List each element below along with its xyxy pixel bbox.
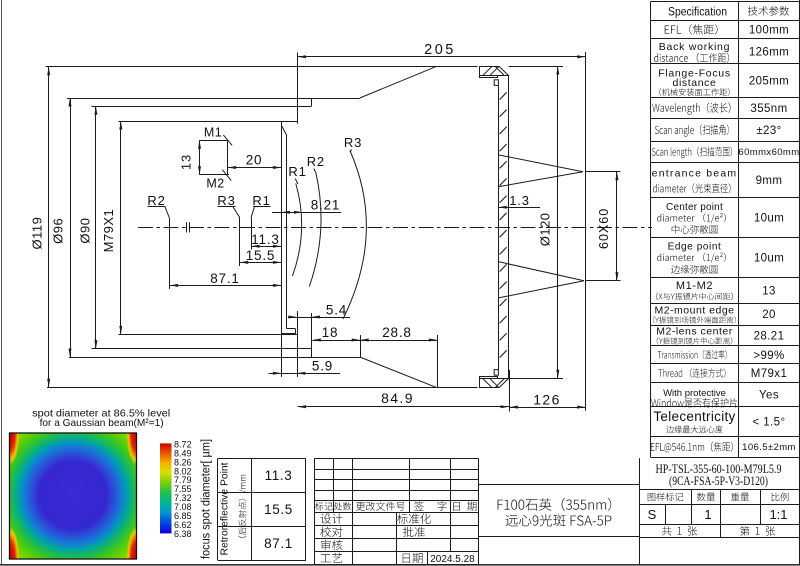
svg-text:R3: R3: [344, 135, 362, 150]
svg-text:13: 13: [179, 154, 194, 170]
svg-text:6.38: 6.38: [174, 529, 192, 539]
svg-text:13: 13: [762, 286, 776, 298]
svg-text:Ø119: Ø119: [29, 217, 44, 250]
svg-text:87.1: 87.1: [264, 536, 293, 551]
svg-text:Ø120: Ø120: [537, 212, 552, 246]
svg-text:18: 18: [322, 325, 339, 340]
svg-text:focus spot diameter[ µm]: focus spot diameter[ µm]: [201, 439, 213, 559]
svg-text:±23°: ±23°: [756, 125, 781, 137]
svg-text:28.21: 28.21: [754, 330, 785, 342]
svg-text:60mmx60mm: 60mmx60mm: [738, 147, 799, 158]
svg-text:87.1: 87.1: [210, 271, 239, 286]
svg-text:11.3: 11.3: [251, 232, 279, 247]
svg-text:for a Gaussian beam(M²=1): for a Gaussian beam(M²=1): [40, 417, 164, 429]
svg-text:Retroreflective Point: Retroreflective Point: [219, 462, 231, 555]
svg-text:entrance beam: entrance beam: [652, 168, 738, 180]
svg-text:100mm: 100mm: [749, 25, 789, 37]
svg-text:With protective: With protective: [663, 388, 726, 399]
svg-text:R1: R1: [252, 193, 270, 208]
svg-text:M79X1: M79X1: [101, 209, 116, 253]
svg-text:Yes: Yes: [759, 390, 779, 402]
svg-text:10um: 10um: [754, 253, 784, 265]
svg-text:Back working: Back working: [659, 41, 730, 53]
svg-text:5.4: 5.4: [326, 303, 347, 318]
svg-text:M2-lens center: M2-lens center: [656, 326, 732, 338]
svg-text:1: 1: [704, 507, 711, 522]
svg-text:1:1: 1:1: [769, 507, 787, 522]
svg-text:5.9: 5.9: [312, 359, 333, 374]
svg-text:15.5: 15.5: [264, 502, 293, 517]
svg-text:Ø90: Ø90: [77, 218, 92, 244]
svg-text:R2: R2: [307, 154, 325, 169]
svg-text:60X60: 60X60: [597, 208, 611, 249]
svg-text:355nm: 355nm: [750, 103, 787, 115]
svg-text:84.9: 84.9: [381, 390, 414, 406]
svg-text:28.8: 28.8: [382, 325, 411, 340]
svg-text:106.5±2mm: 106.5±2mm: [742, 442, 796, 453]
svg-text:Edge point: Edge point: [668, 242, 722, 253]
svg-text:11.3: 11.3: [265, 468, 293, 483]
svg-text:>99%: >99%: [753, 350, 784, 362]
svg-text:R2: R2: [147, 193, 165, 208]
svg-text:M2: M2: [206, 176, 224, 190]
svg-text:205mm: 205mm: [749, 76, 789, 88]
svg-text:M1: M1: [204, 125, 222, 139]
svg-text:205: 205: [424, 42, 456, 58]
svg-text:20: 20: [246, 153, 263, 168]
svg-text:126mm: 126mm: [749, 46, 789, 58]
svg-text:R3: R3: [217, 193, 235, 208]
svg-text:Center point: Center point: [666, 202, 723, 213]
svg-text:Telecentricity: Telecentricity: [653, 409, 735, 424]
svg-text:1.3: 1.3: [509, 193, 529, 208]
svg-text:126: 126: [533, 391, 561, 407]
svg-text:15.5: 15.5: [246, 248, 275, 263]
svg-text:R1: R1: [288, 164, 306, 179]
svg-text:M2-mount edge: M2-mount edge: [654, 305, 734, 317]
svg-text:20: 20: [762, 309, 776, 321]
svg-text:Ø96: Ø96: [50, 218, 65, 244]
svg-text:(9CA-FSA-5P-V3-D120): (9CA-FSA-5P-V3-D120): [669, 474, 768, 488]
svg-text:2024.5.28: 2024.5.28: [430, 554, 475, 565]
svg-text:8.21: 8.21: [311, 198, 340, 213]
svg-text:Specification: Specification: [668, 7, 727, 19]
svg-text:< 1.5°: < 1.5°: [753, 417, 786, 429]
svg-text:M79x1: M79x1: [751, 368, 788, 380]
svg-text:10um: 10um: [754, 213, 784, 225]
svg-text:M1-M2: M1-M2: [676, 280, 713, 292]
svg-text:S: S: [648, 507, 657, 522]
svg-text:9mm: 9mm: [756, 175, 783, 187]
svg-text:distance: distance: [673, 77, 717, 89]
